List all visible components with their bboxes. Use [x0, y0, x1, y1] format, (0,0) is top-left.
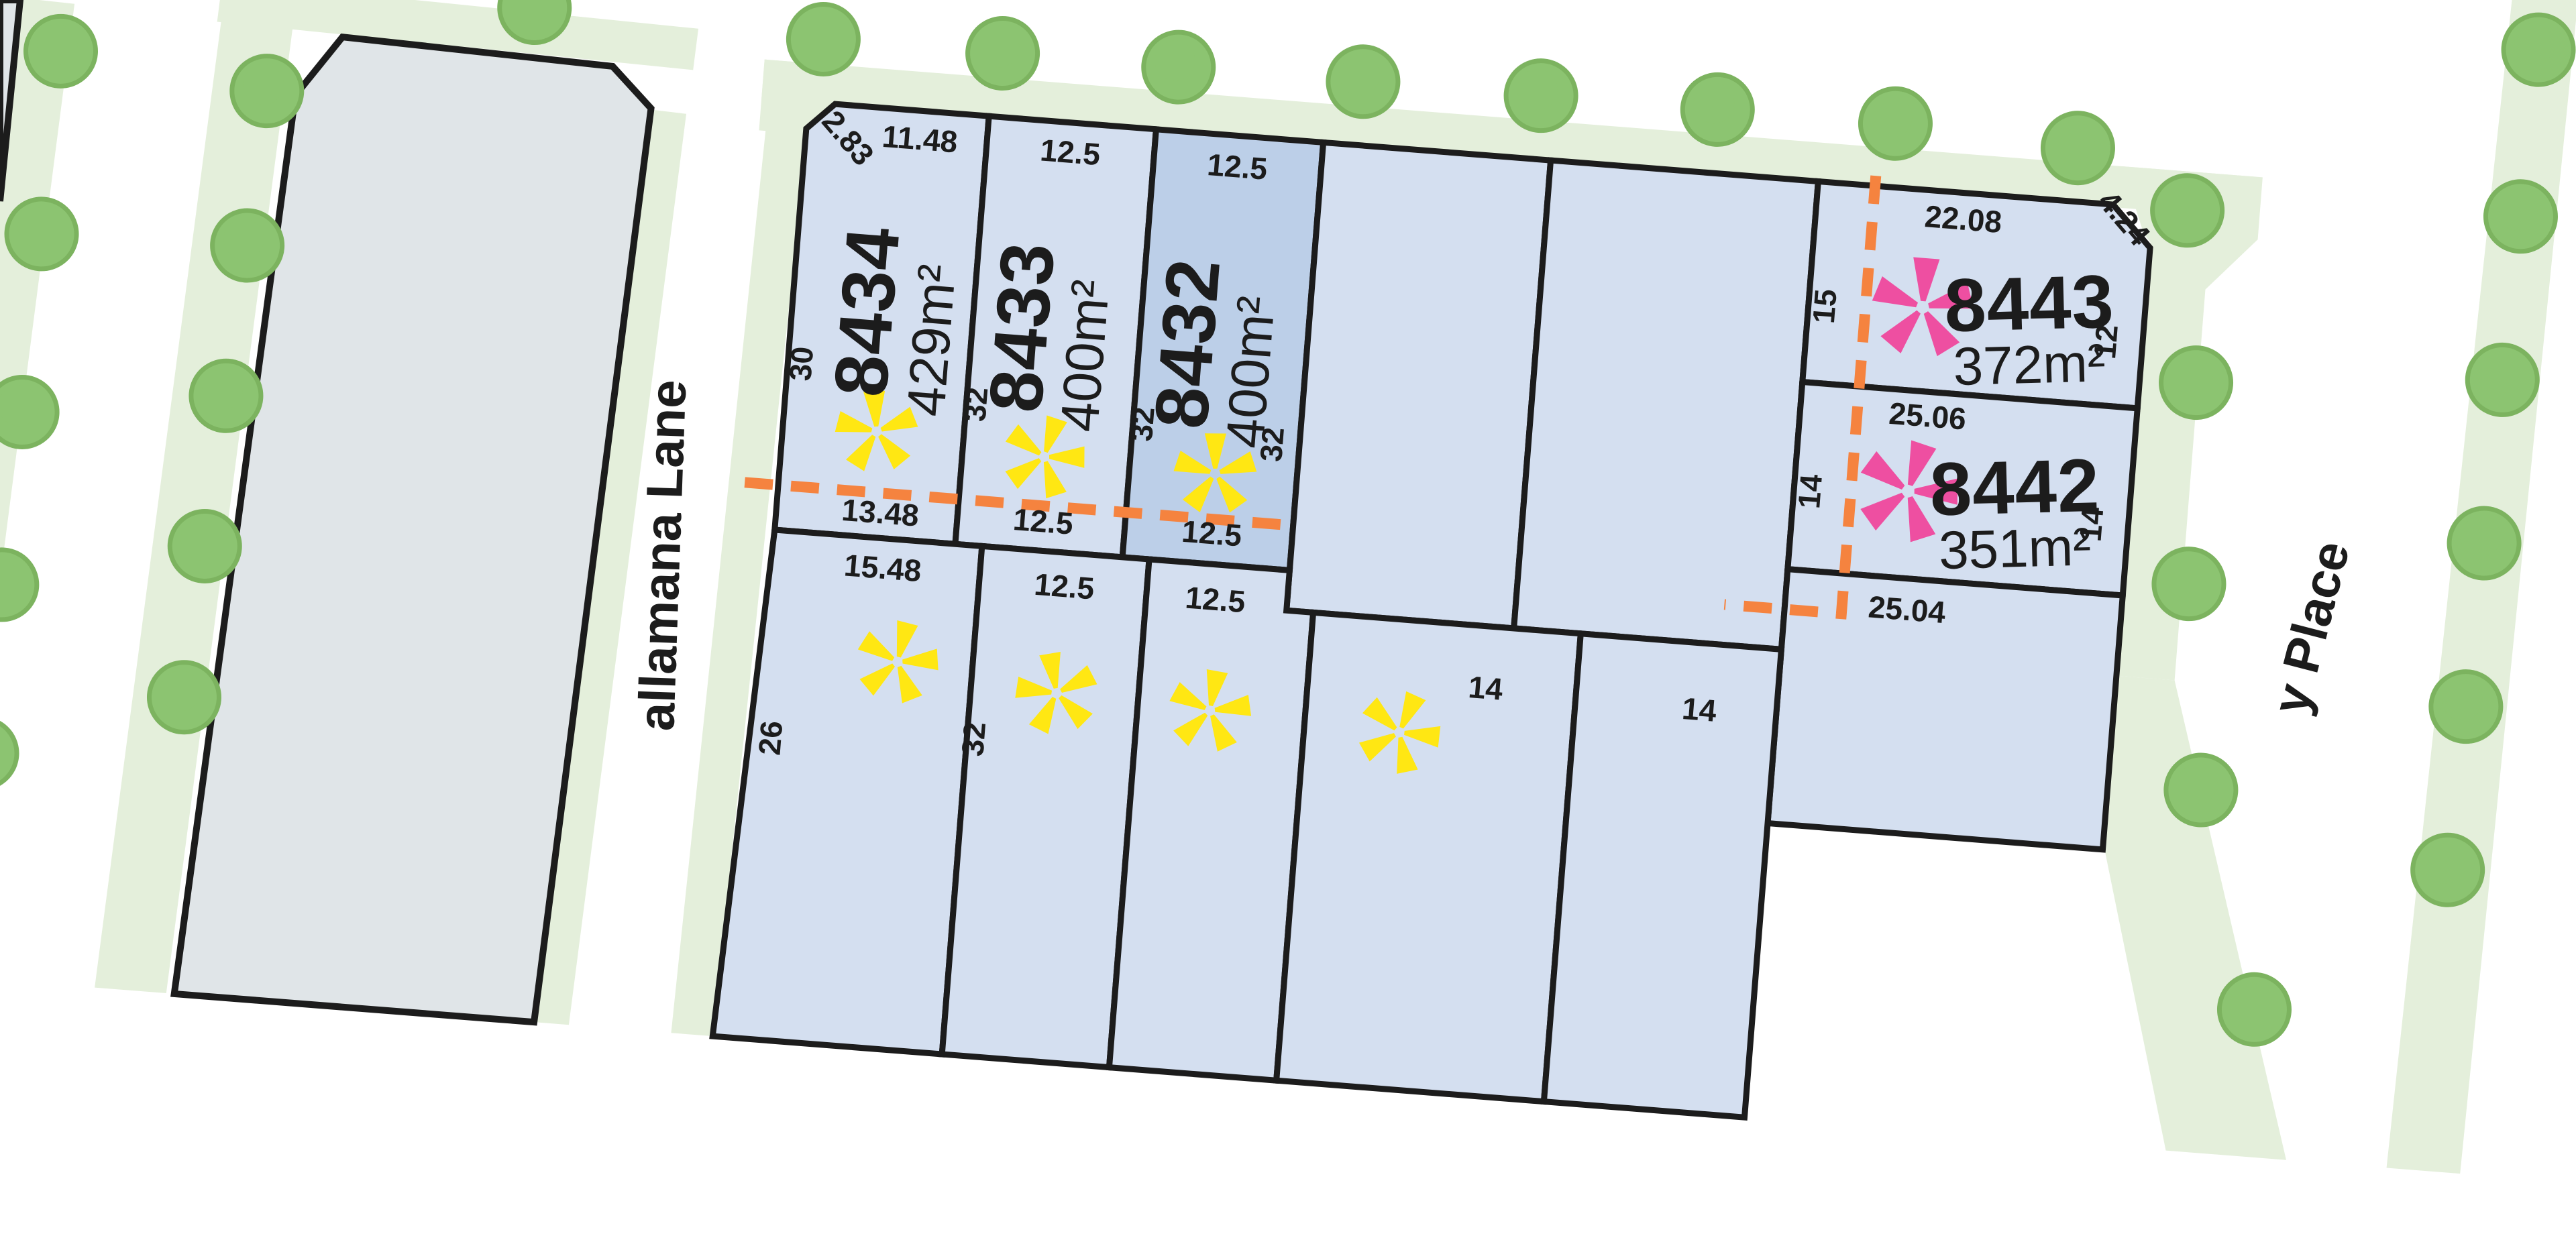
tree-icon — [147, 660, 222, 735]
dim-8443-top: 22.08 — [1923, 198, 2003, 239]
dim-8434-top: 11.48 — [881, 119, 959, 160]
tree-icon — [210, 208, 285, 283]
subdivision-map: { "title": "Residential estate subdivisi… — [0, 0, 2576, 724]
lot-8443-area: 372m² — [1952, 333, 2106, 396]
dim-8432-top: 12.5 — [1206, 147, 1269, 186]
dim-8434-bottom: 13.48 — [841, 492, 920, 533]
tree-icon — [2428, 669, 2504, 744]
tree-icon — [2483, 179, 2559, 254]
dim-8442-left: 14 — [1791, 473, 1829, 510]
dim-8433-top: 12.5 — [1039, 132, 1102, 172]
lot-8432-area: 400m² — [1215, 294, 1287, 450]
tree-icon — [2150, 173, 2225, 248]
street-label-lane: allamana Lane — [628, 379, 697, 732]
dim-row2-4-top: 14 — [1467, 669, 1505, 707]
tree-icon — [0, 716, 19, 791]
tree-icon — [2151, 547, 2226, 622]
dim-8433-bottom: 12.5 — [1012, 502, 1074, 541]
dim-row2-5-top: 14 — [1680, 691, 1718, 728]
dim-below-8442-top: 25.04 — [1867, 589, 1947, 630]
verge-east-flare — [2080, 676, 2323, 1160]
dim-row2-3-top: 12.5 — [1184, 579, 1246, 619]
tree-icon — [2041, 111, 2116, 186]
corner-reserve-shape — [0, 0, 20, 201]
tree-icon — [786, 2, 861, 77]
tree-icon — [965, 16, 1040, 91]
tree-icon — [1680, 72, 1755, 147]
corner-block-sliver — [0, 0, 148, 268]
lot-8442-area: 351m² — [1938, 516, 2092, 580]
dim-8443-left: 15 — [1806, 288, 1843, 325]
lot-row2-5-shape[interactable] — [1544, 634, 1781, 1117]
dim-row2-2-top: 12.5 — [1033, 567, 1095, 606]
dim-8432-bottom: 12.5 — [1181, 514, 1243, 553]
dim-row2-1-top: 15.48 — [843, 547, 922, 588]
dim-row2-2-side-partial: 32 — [955, 721, 992, 758]
lot-unlabelled-1-shape[interactable] — [1287, 142, 1551, 628]
tree-icon — [2163, 752, 2239, 828]
tree-icon — [0, 375, 60, 450]
tree-icon — [229, 54, 305, 129]
tree-icon — [2217, 972, 2292, 1047]
dim-row2-1-left: 26 — [751, 720, 789, 756]
verge-far-right-strip — [2387, 0, 2576, 1176]
lot-unlabelled-2-shape[interactable] — [1514, 160, 1819, 649]
tree-icon — [2159, 345, 2234, 420]
lot-8434-area: 429m² — [896, 262, 967, 418]
tree-icon — [2465, 342, 2540, 417]
tree-icon — [2501, 12, 2576, 87]
tree-icon — [189, 358, 264, 433]
dim-8442-top: 25.06 — [1888, 396, 1968, 437]
tree-icon — [2410, 832, 2485, 907]
tree-icon — [167, 509, 242, 584]
tree-icon — [0, 547, 40, 622]
tree-icon — [1326, 44, 1401, 119]
tree-icon — [1141, 30, 1216, 105]
tree-icon — [1503, 58, 1578, 133]
tree-icon — [1858, 86, 1933, 161]
dim-8434-left: 30 — [782, 345, 820, 382]
tree-icon — [2447, 506, 2522, 581]
plan-canvas: 11.48 2.83 30 13.48 12.5 32 12.5 12.5 32… — [0, 0, 2576, 1248]
lot-row2-4-shape[interactable] — [1277, 612, 1581, 1101]
lot-8433-area: 400m² — [1049, 278, 1121, 434]
street-label-place: y Place — [2261, 535, 2361, 720]
